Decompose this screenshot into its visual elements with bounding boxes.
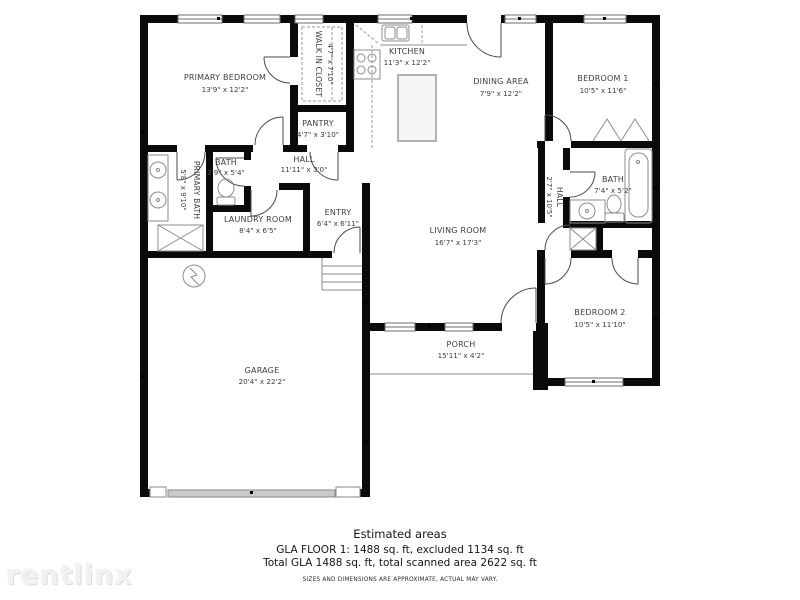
front-door <box>501 288 536 331</box>
svg-text:10'5" x 11'10": 10'5" x 11'10" <box>574 320 625 329</box>
svg-text:DINING AREA: DINING AREA <box>473 77 529 86</box>
shower-icon <box>158 225 203 251</box>
svg-text:WALK IN CLOSET: WALK IN CLOSET <box>314 31 323 98</box>
linen-closet <box>570 228 596 250</box>
primary-bath-vanity <box>148 155 168 221</box>
room-label-porch: PORCH 15'11" x 4'2" <box>438 340 485 360</box>
svg-text:20'4" x 22'2": 20'4" x 22'2" <box>239 377 286 386</box>
bath2-door <box>570 172 595 197</box>
room-label-living-room: LIVING ROOM 16'7" x 17'3" <box>430 226 487 247</box>
estimated-areas-title: Estimated areas <box>0 527 800 541</box>
window <box>295 15 323 23</box>
svg-text:10'5" x 11'6": 10'5" x 11'6" <box>580 86 627 95</box>
svg-text:HALL: HALL <box>293 155 315 164</box>
svg-text:11'3" x 12'2": 11'3" x 12'2" <box>384 58 431 67</box>
svg-text:13'9" x 12'2": 13'9" x 12'2" <box>202 85 249 94</box>
garage-entry-door <box>334 227 360 253</box>
svg-text:15'11" x 4'2": 15'11" x 4'2" <box>438 351 485 360</box>
bedroom1-closet-bifold-doors <box>593 119 649 141</box>
floorplan-drawing: PRIMARY BEDROOM 13'9" x 12'2" WALK IN CL… <box>0 0 800 600</box>
svg-text:2'9" x 5'4": 2'9" x 5'4" <box>207 168 245 177</box>
svg-text:KITCHEN: KITCHEN <box>389 47 425 56</box>
svg-text:ENTRY: ENTRY <box>325 208 352 217</box>
room-label-pantry: PANTRY 4'7" x 3'10" <box>297 119 339 139</box>
room-label-bath-2: BATH 7'4" x 5'2" <box>594 175 632 195</box>
svg-text:7'9" x 12'2": 7'9" x 12'2" <box>480 89 522 98</box>
window <box>244 15 280 23</box>
window <box>378 15 412 23</box>
svg-text:PRIMARY BATH: PRIMARY BATH <box>192 161 201 219</box>
kitchen-sink <box>382 25 409 41</box>
primary-bedroom-door <box>255 117 283 145</box>
floorplan-page: PRIMARY BEDROOM 13'9" x 12'2" WALK IN CL… <box>0 0 800 600</box>
room-label-hall-2: HALL 2'7" x 10'5" <box>545 176 564 217</box>
closet-door <box>264 57 290 83</box>
kitchen-island <box>398 75 436 141</box>
svg-text:PORCH: PORCH <box>447 340 476 349</box>
svg-text:11'11" x 3'0": 11'11" x 3'0" <box>281 165 328 174</box>
svg-text:4'7" x 3'10": 4'7" x 3'10" <box>297 130 339 139</box>
svg-text:GARAGE: GARAGE <box>245 366 280 375</box>
svg-text:6'4" x 6'11": 6'4" x 6'11" <box>317 219 359 228</box>
svg-text:7'4" x 5'2": 7'4" x 5'2" <box>594 186 632 195</box>
laundry-door <box>251 190 277 216</box>
stove-icon <box>354 50 380 79</box>
svg-text:BEDROOM 1: BEDROOM 1 <box>577 74 628 83</box>
room-label-kitchen: KITCHEN 11'3" x 12'2" <box>384 47 431 67</box>
gla-floor-line: GLA FLOOR 1: 1488 sq. ft, excluded 1134 … <box>0 544 800 557</box>
room-label-garage: GARAGE 20'4" x 22'2" <box>239 366 286 386</box>
hall-door <box>545 225 570 250</box>
svg-text:4'7" x 7'10": 4'7" x 7'10" <box>326 43 334 84</box>
bath2-vanity <box>570 200 605 223</box>
window <box>445 323 473 331</box>
room-label-bedroom-1: BEDROOM 1 10'5" x 11'6" <box>577 74 628 95</box>
room-label-walk-in-closet: WALK IN CLOSET 4'7" x 7'10" <box>314 31 334 98</box>
bedroom2-closet-door <box>612 258 638 284</box>
svg-text:LIVING ROOM: LIVING ROOM <box>430 226 487 235</box>
garage-door <box>150 487 360 497</box>
svg-text:LAUNDRY ROOM: LAUNDRY ROOM <box>224 215 292 224</box>
rentlinx-watermark: rentlinx <box>6 560 133 591</box>
svg-text:2'7" x 10'5": 2'7" x 10'5" <box>545 176 553 217</box>
bedroom2-door <box>545 258 571 284</box>
window <box>178 15 222 23</box>
room-label-entry: ENTRY 6'4" x 6'11" <box>317 208 359 228</box>
room-label-dining-area: DINING AREA 7'9" x 12'2" <box>473 77 529 98</box>
room-label-laundry-room: LAUNDRY ROOM 8'4" x 6'5" <box>224 215 292 235</box>
electrical-panel-icon <box>183 265 205 287</box>
svg-text:8'4" x 6'5": 8'4" x 6'5" <box>239 226 277 235</box>
svg-text:BATH: BATH <box>602 175 624 184</box>
svg-text:5'8" x 9'10": 5'8" x 9'10" <box>179 169 187 210</box>
room-label-bedroom-2: BEDROOM 2 10'5" x 11'10" <box>574 308 625 329</box>
svg-text:HALL: HALL <box>555 187 564 208</box>
window <box>385 323 415 331</box>
svg-text:BEDROOM 2: BEDROOM 2 <box>574 308 625 317</box>
room-label-primary-bedroom: PRIMARY BEDROOM 13'9" x 12'2" <box>184 73 266 94</box>
room-label-hall: HALL 11'11" x 3'0" <box>281 155 328 174</box>
toilet2-icon <box>605 195 624 222</box>
svg-text:BATH: BATH <box>215 158 237 167</box>
entry-steps <box>322 258 362 290</box>
svg-text:PANTRY: PANTRY <box>302 119 334 128</box>
toilet-icon <box>217 179 235 205</box>
svg-text:16'7" x 17'3": 16'7" x 17'3" <box>435 238 482 247</box>
room-label-primary-bath: PRIMARY BATH 5'8" x 9'10" <box>179 161 201 219</box>
svg-text:PRIMARY BEDROOM: PRIMARY BEDROOM <box>184 73 266 82</box>
back-door <box>467 15 501 57</box>
